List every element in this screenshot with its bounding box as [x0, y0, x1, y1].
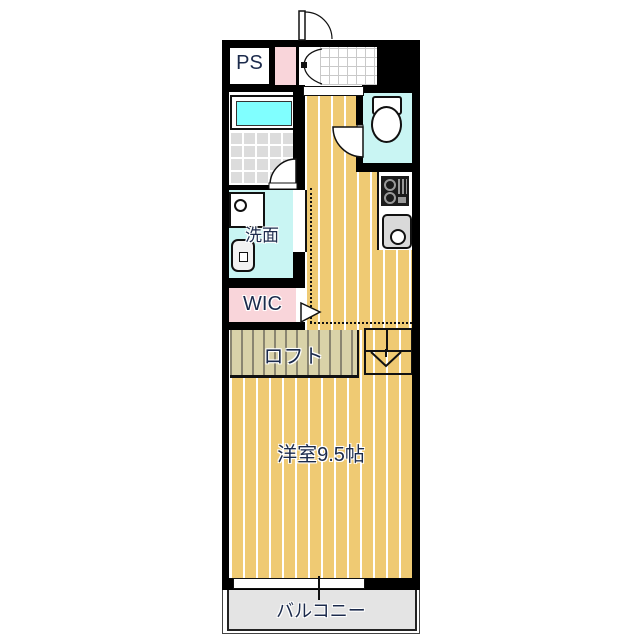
- wall-left: [222, 40, 229, 590]
- wall-seg: [356, 163, 412, 172]
- loft-label: ロフト: [230, 340, 357, 369]
- entrance-step: [303, 86, 364, 96]
- bathroom-tile-floor: [229, 131, 296, 185]
- stove-icon: [381, 176, 409, 206]
- loft-outline-dotted-h: [310, 322, 412, 324]
- main-room-label: 洋室9.5帖: [230, 438, 412, 467]
- balcony-label: バルコニー: [227, 597, 415, 623]
- toilet-bowl-icon: [371, 106, 402, 143]
- entry-strip: [299, 47, 320, 87]
- wic-door-recess: [296, 288, 305, 322]
- loft-outline-dotted-v: [310, 188, 312, 323]
- ps-label: PS: [227, 52, 272, 75]
- wall-right: [412, 40, 420, 590]
- wall-seg: [356, 155, 363, 163]
- washroom-label: 洗面: [231, 221, 293, 246]
- entrance-tile-floor: [320, 47, 377, 85]
- entry-closet: [275, 47, 296, 86]
- bathtub-icon: [236, 101, 292, 126]
- floor-plan: PS 洗面 WIC ロフト 洋室9.5帖 バルコニー: [0, 0, 640, 640]
- wall-seg: [362, 85, 412, 93]
- kitchen-sink-icon: [382, 214, 412, 249]
- wall-seg: [296, 47, 299, 87]
- wall-seg: [356, 93, 363, 125]
- wall-seg: [293, 85, 305, 190]
- entrance-door-arc-icon: [305, 12, 332, 39]
- wall-seg: [222, 322, 305, 330]
- wall-seg: [222, 185, 298, 190]
- drain-circle-icon: [234, 199, 247, 212]
- entrance-door-leaf-icon: [299, 11, 305, 40]
- faucet-icon: [239, 252, 248, 262]
- loft-ladder-box: [364, 328, 413, 375]
- wic-label: WIC: [229, 293, 296, 316]
- washroom-sliding-door: [293, 190, 307, 252]
- wall-seg: [272, 47, 275, 86]
- wall-seg: [222, 278, 305, 288]
- balcony-window: [233, 578, 365, 589]
